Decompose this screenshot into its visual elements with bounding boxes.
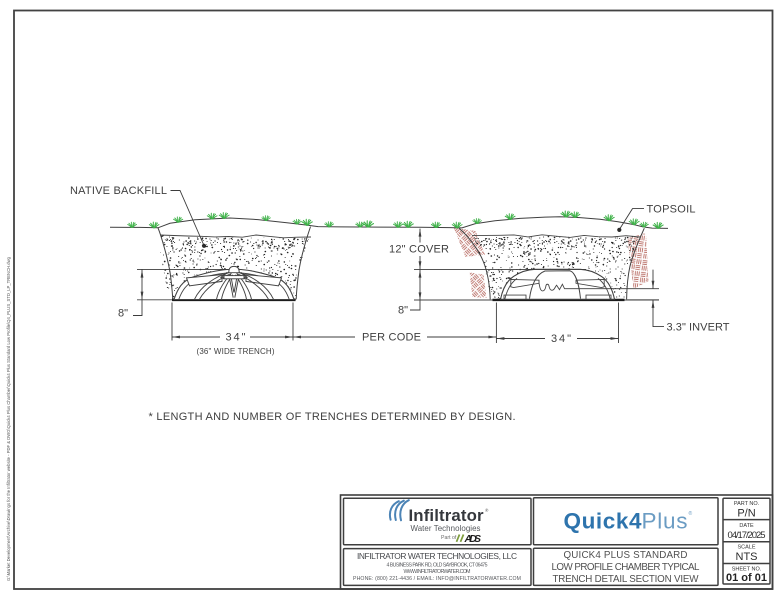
svg-text:G:\Market Development\Archive\: G:\Market Development\Archive\Drawings f… (6, 256, 11, 581)
svg-text:12" COVER: 12" COVER (389, 244, 449, 256)
svg-text:PHONE: (800) 221-4436 / EMAIL:: PHONE: (800) 221-4436 / EMAIL: INFO@INFI… (353, 576, 521, 582)
svg-text:LOW PROFILE CHAMBER TYPICAL: LOW PROFILE CHAMBER TYPICAL (552, 562, 701, 573)
svg-text:INFILTRATOR WATER TECHNOLOGIES: INFILTRATOR WATER TECHNOLOGIES, LLC (357, 551, 517, 561)
svg-text:Plus: Plus (642, 508, 688, 533)
svg-text:* LENGTH AND NUMBER OF TRENCHE: * LENGTH AND NUMBER OF TRENCHES DETERMIN… (149, 411, 516, 423)
svg-text:01 of 01: 01 of 01 (726, 572, 767, 584)
svg-text:8": 8" (118, 308, 128, 320)
svg-text:®: ® (689, 510, 693, 517)
svg-text:DATE: DATE (739, 523, 754, 529)
svg-text:8": 8" (398, 304, 408, 316)
svg-text:®: ® (485, 507, 489, 513)
svg-text:3.3" INVERT: 3.3" INVERT (667, 321, 730, 333)
svg-text:QUICK4 PLUS STANDARD: QUICK4 PLUS STANDARD (564, 550, 688, 561)
svg-text:04/17/2025: 04/17/2025 (728, 530, 766, 541)
svg-text:34": 34" (226, 332, 246, 344)
svg-text:WWW.INFILTRATORWATER.COM: WWW.INFILTRATORWATER.COM (404, 569, 471, 575)
svg-text:PER CODE: PER CODE (362, 332, 421, 344)
svg-text:ADS: ADS (464, 533, 482, 545)
svg-text:TOPSOIL: TOPSOIL (647, 204, 696, 216)
svg-text:4 BUSINESS PARK RD, OLD SAYBRO: 4 BUSINESS PARK RD, OLD SAYBROOK, CT 064… (387, 562, 488, 568)
svg-text:SCALE: SCALE (737, 545, 755, 551)
svg-text:(36" WIDE TRENCH): (36" WIDE TRENCH) (197, 347, 275, 356)
svg-text:NATIVE BACKFILL: NATIVE BACKFILL (70, 185, 167, 197)
svg-text:Quick4: Quick4 (564, 508, 642, 533)
svg-text:34": 34" (551, 333, 571, 345)
svg-text:P/N: P/N (737, 508, 755, 520)
svg-text:Part of: Part of (441, 535, 457, 541)
svg-text:Water Technologies: Water Technologies (411, 524, 481, 533)
svg-text:TRENCH DETAIL SECTION VIEW: TRENCH DETAIL SECTION VIEW (553, 574, 700, 585)
svg-text:PART NO.: PART NO. (734, 501, 760, 507)
svg-text:Infiltrator: Infiltrator (409, 506, 484, 525)
svg-text:NTS: NTS (736, 551, 758, 563)
